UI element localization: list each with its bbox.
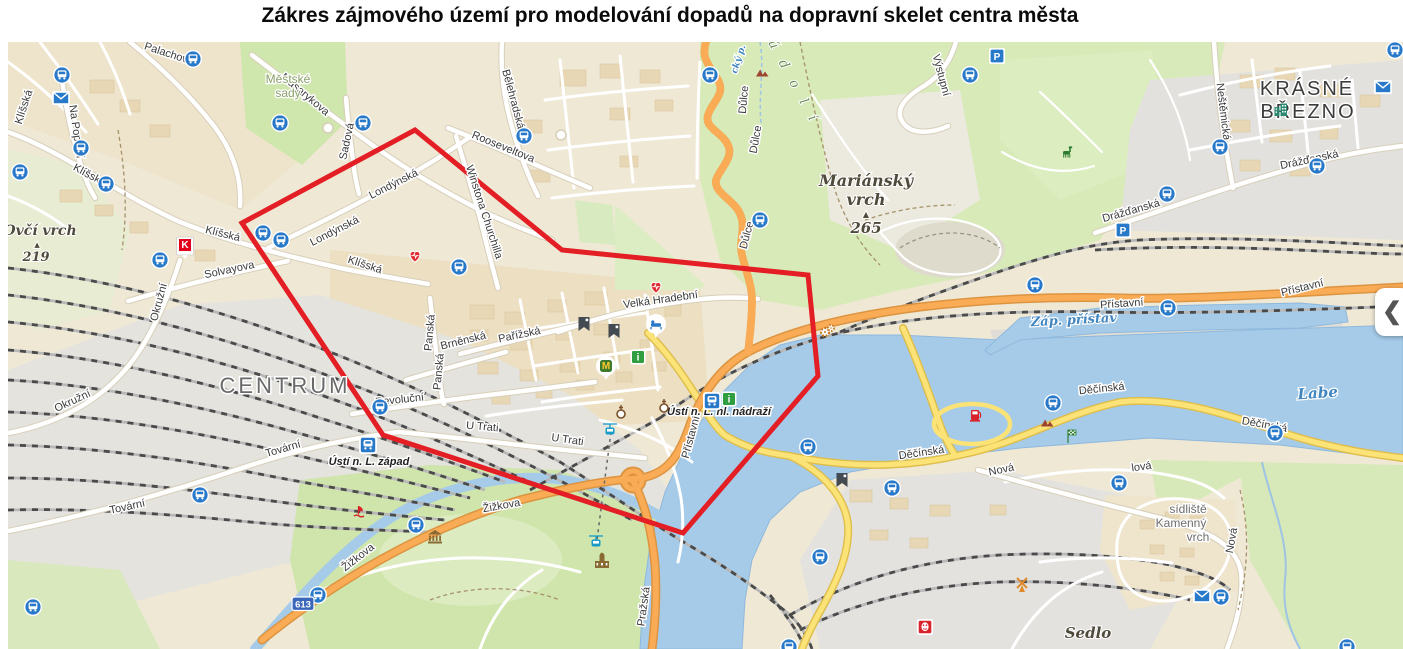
svg-text:P: P [994,52,1001,63]
theater-icon[interactable] [917,619,933,635]
train-station-icon[interactable] [359,436,377,454]
place-label: CENTRUM [220,373,351,398]
place-label: 265 [849,219,881,237]
svg-text:i: i [637,353,640,364]
bus-stop-icon[interactable] [1212,588,1230,606]
svg-text:613: 613 [295,600,311,611]
bus-stop-icon[interactable] [271,114,289,132]
map-viewport[interactable]: PalachovaMasarykovaSadováKlíšskáKlíšskáK… [8,42,1403,649]
bus-stop-icon[interactable] [1159,299,1177,317]
water-label: Labe [1296,383,1338,404]
place-label: KRÁSNÉ [1260,77,1354,100]
bus-stop-icon[interactable] [72,139,90,157]
bus-stop-icon[interactable] [1110,474,1128,492]
svg-text:K: K [181,240,189,251]
place-label: Mariánský [818,171,915,190]
bus-stop-icon[interactable] [151,251,169,269]
place-label: Ústí n. L. západ [329,455,410,468]
bus-stop-icon[interactable] [1158,185,1176,203]
post-office-icon[interactable] [1374,80,1392,94]
bus-stop-icon[interactable] [371,398,389,416]
bus-stop-icon[interactable] [1044,394,1062,412]
bus-stop-icon[interactable] [272,231,290,249]
bus-stop-icon[interactable] [354,114,372,132]
info-icon[interactable]: i [631,350,646,365]
side-panel-toggle[interactable]: ❮ [1375,288,1403,336]
bus-stop-icon[interactable] [254,224,272,242]
bus-stop-icon[interactable] [515,127,533,145]
bus-stop-icon[interactable] [53,66,71,84]
svg-text:i: i [728,395,731,406]
road-shield-icon[interactable]: 613 [292,597,314,611]
place-label: sady [275,86,300,100]
place-label: ▲ [863,209,870,219]
bus-stop-icon[interactable] [961,66,979,84]
bus-stop-icon[interactable] [184,50,202,68]
place-label: Kamenný [1156,516,1207,530]
train-station-icon[interactable] [703,392,721,410]
parking-icon[interactable]: P [989,48,1005,64]
post-office-icon[interactable] [52,91,70,105]
svg-text:P: P [1120,226,1127,237]
post-office-icon[interactable] [1193,589,1211,603]
bus-stop-icon[interactable] [883,479,901,497]
place-label: Sedlo [1065,624,1112,642]
bus-stop-icon[interactable] [1308,157,1326,175]
place-label: 219 [21,250,49,265]
bus-stop-icon[interactable] [1026,276,1044,294]
place-label: Městské [266,72,311,86]
bus-stop-icon[interactable] [751,211,769,229]
place-label: vrch [1187,530,1210,544]
bus-stop-icon[interactable] [11,163,29,181]
place-label: vrch [846,190,885,209]
bus-stop-icon[interactable] [1266,424,1284,442]
place-label: ▲ [34,240,40,249]
bus-stop-icon[interactable] [97,175,115,193]
bus-stop-icon[interactable] [450,258,468,276]
svg-text:M: M [602,361,610,372]
bus-stop-icon[interactable] [24,598,42,616]
chevron-left-icon: ❮ [1382,300,1402,324]
bus-stop-icon[interactable] [811,548,829,566]
bus-stop-icon[interactable] [191,486,209,504]
bus-stop-icon[interactable] [1211,138,1229,156]
bus-stop-icon[interactable] [701,66,719,84]
place-label: sídliště [1169,502,1207,516]
page: Zákres zájmového území pro modelování do… [0,0,1403,649]
info-icon[interactable]: i [722,392,737,407]
bus-stop-icon[interactable] [407,516,425,534]
street-label: Důlce [737,85,751,114]
bus-stop-icon[interactable] [799,438,817,456]
parking-icon[interactable]: P [1115,222,1131,238]
place-label: Ovčí vrch [8,223,77,239]
map-svg: PalachovaMasarykovaSadováKlíšskáKlíšskáK… [8,42,1403,649]
page-title: Zákres zájmového území pro modelování do… [0,4,1340,28]
